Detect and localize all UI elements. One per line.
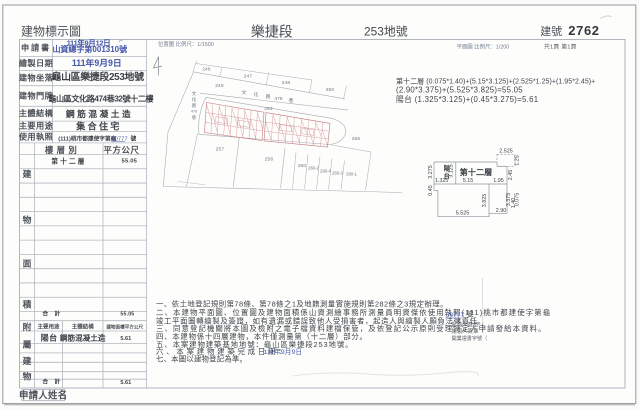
svg-text:111年9月9日: 111年9月9日	[72, 57, 122, 68]
svg-text:253地號: 253地號	[364, 25, 408, 39]
svg-text:478: 478	[191, 110, 197, 114]
svg-text:55.05: 55.05	[120, 312, 134, 318]
svg-text:文: 文	[242, 89, 247, 96]
svg-text:路: 路	[266, 93, 271, 100]
svg-text:2.525: 2.525	[499, 149, 513, 155]
svg-text:化: 化	[192, 96, 197, 103]
svg-text:2.90: 2.90	[496, 208, 507, 214]
svg-text:第十二層: 第十二層	[51, 157, 86, 166]
svg-text:積: 積	[22, 299, 32, 310]
svg-text:物: 物	[23, 214, 32, 225]
svg-text:3.825: 3.825	[482, 194, 488, 208]
svg-text:陽台: 陽台	[41, 333, 58, 343]
svg-text:253: 253	[264, 106, 273, 112]
svg-text:巷: 巷	[192, 115, 197, 120]
svg-text:第十二層: 第十二層	[460, 167, 493, 177]
svg-text:樓層別: 樓層別	[45, 145, 80, 155]
svg-text:260-3: 260-3	[332, 170, 343, 175]
svg-text:台: 台	[444, 171, 451, 180]
svg-text:起造人簽章（: 起造人簽章（	[452, 321, 485, 329]
svg-text:0.45: 0.45	[428, 185, 434, 196]
svg-text:平方公尺: 平方公尺	[104, 145, 140, 155]
svg-text:山資總字第001310號: 山資總字第001310號	[52, 44, 127, 54]
svg-text:1.95: 1.95	[493, 178, 504, 184]
svg-text:5.15: 5.15	[463, 178, 474, 184]
svg-text:申請人姓名: 申請人姓名	[19, 390, 67, 401]
svg-text:258: 258	[265, 157, 274, 163]
svg-text:集合住宅: 集合住宅	[75, 120, 122, 131]
svg-text:平面圖 比例尺：1/200: 平面圖 比例尺：1/200	[457, 43, 510, 51]
svg-text:主體結構: 主體結構	[72, 323, 95, 331]
svg-text:250: 250	[326, 87, 335, 93]
svg-text:號: 號	[131, 135, 137, 143]
svg-text:建: 建	[22, 168, 32, 179]
svg-text:256: 256	[352, 136, 361, 142]
svg-text:繪製日期: 繪製日期	[19, 58, 53, 68]
svg-text:主體結構: 主體結構	[19, 108, 54, 118]
svg-text:巷: 巷	[289, 98, 294, 104]
svg-text:鋼筋混凝土造: 鋼筋混凝土造	[59, 332, 106, 342]
svg-text:使用執照: 使用執照	[18, 132, 54, 142]
svg-text:260-1: 260-1	[346, 171, 357, 176]
svg-text:0.075: 0.075	[514, 193, 520, 207]
svg-text:開業證書字號（: 開業證書字號（	[452, 335, 488, 342]
svg-text:屬: 屬	[23, 339, 32, 349]
svg-text:55.05: 55.05	[122, 158, 138, 164]
svg-text:樂捷段: 樂捷段	[251, 24, 293, 40]
svg-text:附: 附	[23, 321, 32, 332]
svg-text:5.61: 5.61	[120, 336, 131, 342]
svg-text:建物標示圖: 建物標示圖	[21, 25, 81, 39]
svg-text:二、本建物平面圖、位置圖及建物面積係山資測繪事務所測量員明資: 二、本建物平面圖、位置圖及建物面積係山資測繪事務所測量員明資傑依使用執照(111…	[156, 308, 551, 317]
svg-text:2762: 2762	[568, 23, 599, 38]
svg-text:建號: 建號	[540, 24, 562, 38]
svg-text:248: 248	[282, 80, 291, 86]
svg-text:249: 249	[215, 83, 224, 89]
svg-text:257: 257	[216, 147, 225, 153]
svg-text:化: 化	[254, 91, 259, 98]
svg-text:建物坐落: 建物坐落	[19, 73, 54, 83]
svg-text:第十二層 (0.075*1.40)+(5.15*3.125): 第十二層 (0.075*1.40)+(5.15*3.125)+(2.525*1.…	[396, 77, 595, 86]
svg-text:(111)桃市都建使字第龜: (111)桃市都建使字第龜	[58, 135, 116, 143]
svg-text:260: 260	[298, 163, 307, 169]
svg-text:路: 路	[192, 102, 197, 109]
svg-text:5.525: 5.525	[456, 210, 470, 216]
svg-text:面: 面	[23, 258, 32, 268]
svg-text:260-4: 260-4	[320, 168, 331, 173]
svg-text:陽台 (1.325*3.125)+(0.45*3.275)=: 陽台 (1.325*3.125)+(0.45*3.275)=5.61	[396, 94, 538, 104]
svg-text:龜山區樂捷段253地號: 龜山區樂捷段253地號	[52, 70, 145, 83]
svg-text:246: 246	[202, 67, 211, 73]
svg-text:合 計: 合 計	[42, 310, 60, 318]
svg-text:繪製人簽章（: 繪製人簽章（	[452, 327, 485, 335]
svg-text:(2.90*3.375)+(5.525*3.825)=55.: (2.90*3.375)+(5.525*3.825)=55.05	[396, 86, 523, 95]
svg-text:陽: 陽	[444, 164, 451, 173]
svg-text:2.45: 2.45	[508, 170, 514, 181]
svg-text:建: 建	[22, 355, 32, 366]
svg-text:共1頁 第1頁: 共1頁 第1頁	[544, 43, 577, 51]
svg-text:申請書: 申請書	[21, 42, 51, 52]
svg-text:號: 號	[466, 310, 474, 319]
svg-text:5.61: 5.61	[120, 380, 131, 386]
svg-text:文: 文	[192, 90, 197, 97]
svg-text:合 計: 合 計	[42, 378, 60, 386]
svg-text:111年9月9日: 111年9月9日	[264, 347, 303, 356]
svg-text:龜山區文化路474巷32號十二樓: 龜山區文化路474巷32號十二樓	[48, 93, 154, 103]
svg-text:主要用途: 主要用途	[19, 121, 54, 131]
svg-text:1.25: 1.25	[515, 155, 521, 166]
svg-text:3.275: 3.275	[428, 165, 434, 179]
svg-text:主要用途: 主要用途	[37, 323, 60, 331]
svg-text:260-2: 260-2	[308, 165, 319, 170]
svg-text:247: 247	[244, 74, 253, 80]
svg-text:物: 物	[23, 371, 32, 382]
svg-text:鋼筋混凝土造: 鋼筋混凝土造	[65, 108, 133, 119]
svg-text:478: 478	[274, 96, 282, 102]
svg-text:位置圖 比例尺：1/1500: 位置圖 比例尺：1/1500	[158, 40, 214, 48]
svg-text:建物面積平方公尺: 建物面積平方公尺	[105, 323, 143, 330]
